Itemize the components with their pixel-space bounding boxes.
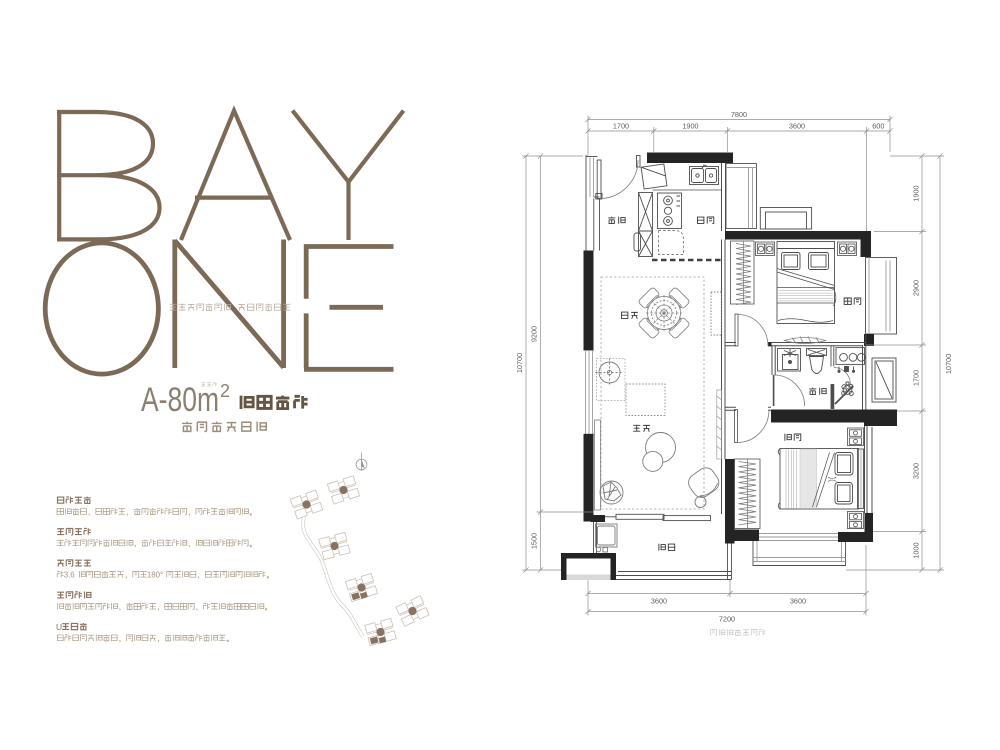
svg-text:600: 600: [872, 122, 884, 131]
svg-text:1500: 1500: [530, 533, 539, 549]
svg-text:3600: 3600: [789, 122, 805, 131]
svg-text:1900: 1900: [912, 185, 921, 201]
svg-text:10700: 10700: [515, 353, 524, 373]
svg-text:3.6: 3.6: [64, 570, 76, 579]
svg-text:1900: 1900: [682, 122, 698, 131]
svg-text:7800: 7800: [731, 110, 747, 119]
svg-text:180°: 180°: [147, 570, 163, 579]
svg-text:7200: 7200: [719, 614, 735, 623]
svg-text:9200: 9200: [530, 326, 539, 342]
svg-text:3600: 3600: [790, 597, 806, 606]
svg-text:A-80m: A-80m: [141, 381, 219, 419]
svg-text:1700: 1700: [613, 122, 629, 131]
svg-text:3600: 3600: [651, 597, 667, 606]
svg-text:U: U: [56, 622, 62, 632]
svg-text:1700: 1700: [912, 370, 921, 386]
svg-text:2900: 2900: [912, 280, 921, 296]
svg-text:2: 2: [220, 381, 230, 401]
svg-text:10700: 10700: [944, 354, 953, 374]
svg-text:1000: 1000: [912, 542, 921, 558]
svg-text:3200: 3200: [912, 463, 921, 479]
